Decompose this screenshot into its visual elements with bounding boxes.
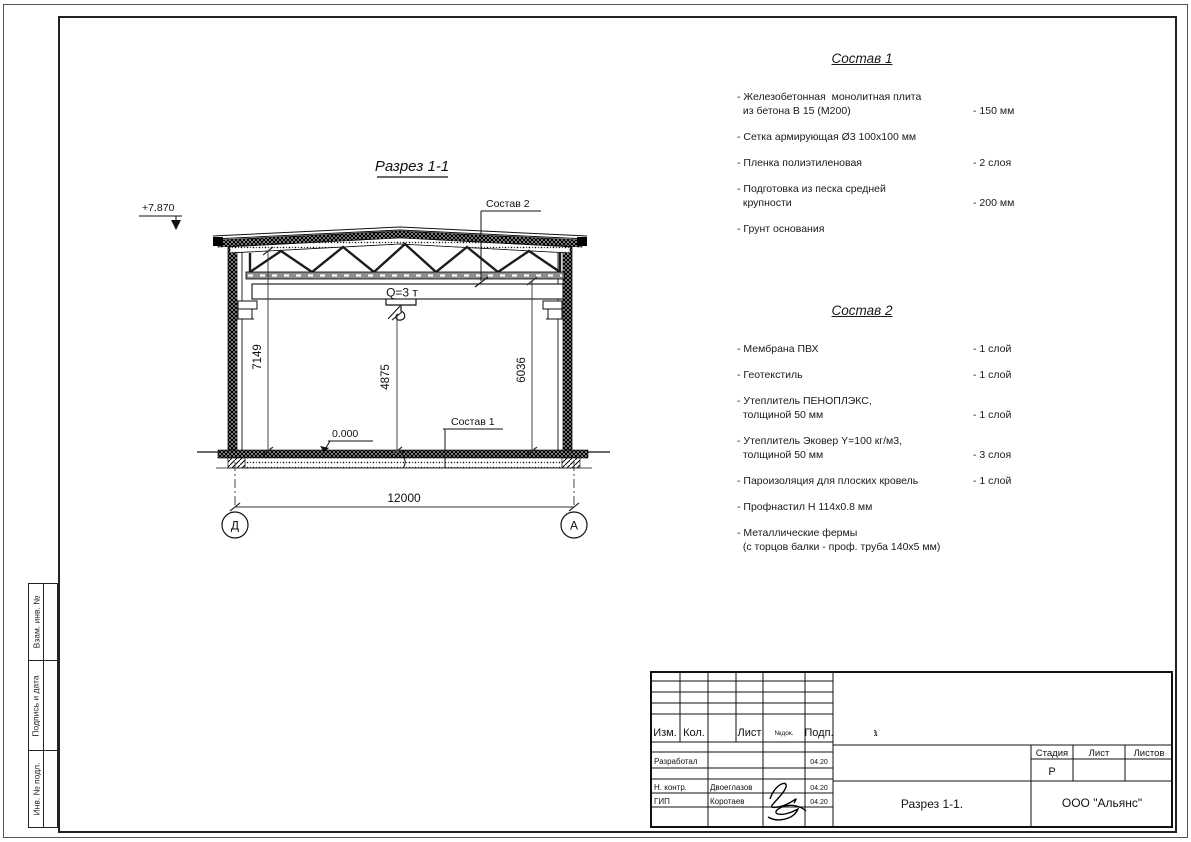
- material-list-sostav2: Состав 2 - Мембрана ПВХ - 1 слой - Геоте…: [737, 304, 1027, 566]
- material-name: - Пленка полиэтиленовая: [737, 156, 969, 170]
- crane-beam: Q=3 т: [252, 284, 563, 320]
- stamp-label-vzam: Взам. инв. №: [29, 584, 44, 660]
- stamp-empty: [44, 584, 57, 660]
- material-item: - Сетка армирующая Ø3 100х100 мм: [737, 130, 1027, 144]
- material-name: - Утеплитель Эковер Y=100 кг/м3, толщино…: [737, 434, 969, 462]
- column-corbels: [235, 301, 565, 319]
- material-name: - Геотекстиль: [737, 368, 969, 382]
- stamp-empty: [44, 751, 57, 827]
- company-name: ООО "Альянс": [1062, 796, 1142, 810]
- material-name: - Профнастил Н 114х0.8 мм: [737, 500, 969, 514]
- col-podp: Подп.: [804, 727, 833, 739]
- role-gip: ГИП: [654, 797, 670, 806]
- view-title-text: Разрез 1-1: [375, 158, 449, 175]
- col-izm: Изм.: [653, 727, 677, 739]
- callout-sostav2-text: Состав 2: [486, 198, 530, 210]
- stamp-text: Подпись и дата: [31, 675, 41, 736]
- callout-sostav1-text: Состав 1: [451, 416, 495, 428]
- material-name: - Металлические фермы (с торцов балки - …: [737, 526, 969, 554]
- stamp-label-podpis: Подпись и дата: [29, 661, 44, 750]
- date-gip: 04.20: [810, 799, 828, 806]
- material-item: - Грунт основания: [737, 222, 1027, 236]
- cross-section-drawing: Разрез 1-1 +7.870 Q=3: [100, 140, 680, 555]
- stamp-text: Взам. инв. №: [31, 596, 41, 649]
- sheets-label: Листов: [1134, 748, 1165, 759]
- material-item: - Железобетонная монолитная плита из бет…: [737, 90, 1027, 118]
- material-value: - 150 мм: [973, 104, 1027, 118]
- roof-edge-cap-left: [213, 237, 223, 246]
- stamp-text: Инв. № подл.: [31, 763, 41, 816]
- material-value: - 1 слой: [973, 368, 1027, 382]
- left-stamp-column: Взам. инв. № Подпись и дата Инв. № подл.: [28, 583, 58, 828]
- name-korotaev: Коротаев: [710, 797, 745, 806]
- material-list-sostav1: Состав 1 - Железобетонная монолитная пли…: [737, 52, 1027, 248]
- stamp-cell-podpis: Подпись и дата: [29, 661, 57, 751]
- material-item: - Мембрана ПВХ - 1 слой: [737, 342, 1027, 356]
- material-name: - Мембрана ПВХ: [737, 342, 969, 356]
- material-name: - Грунт основания: [737, 222, 969, 236]
- sheet-label: Лист: [1089, 748, 1110, 759]
- axis-letter-left: Д: [231, 519, 239, 533]
- dimension-12000: 12000: [387, 491, 421, 505]
- view-title: Разрез 1-1: [375, 158, 449, 177]
- date-nkontr: 04.20: [810, 785, 828, 792]
- material-value: - 2 слоя: [973, 156, 1027, 170]
- material-name: - Подготовка из песка средней крупности: [737, 182, 969, 210]
- stage-label: Стадия: [1036, 748, 1068, 759]
- material-item: - Утеплитель Эковер Y=100 кг/м3, толщино…: [737, 434, 1027, 462]
- stage-value: Р: [1048, 766, 1055, 778]
- dimension-7149: 7149: [252, 344, 264, 370]
- level-mark-text: 0.000: [332, 428, 358, 440]
- document-name: Разрез 1-1.: [901, 797, 963, 811]
- material-name: - Железобетонная монолитная плита из бет…: [737, 90, 969, 118]
- dimension-6036: 6036: [516, 357, 528, 383]
- col-kol: Кол.: [683, 727, 705, 739]
- name-dvoeglazov: Двоеглазов: [710, 783, 753, 792]
- dimension-4875: 4875: [380, 364, 392, 390]
- col-ndok: №док.: [774, 730, 793, 737]
- material-item: - Пленка полиэтиленовая - 2 слоя: [737, 156, 1027, 170]
- crane-trolley: [386, 299, 416, 305]
- material-item: - Геотекстиль - 1 слой: [737, 368, 1027, 382]
- date-razrabotal: 04.20: [810, 759, 828, 766]
- crane-capacity-label: Q=3 т: [386, 286, 418, 300]
- material-value: - 200 мм: [973, 196, 1027, 210]
- material-name: - Утеплитель ПЕНОПЛЭКС, толщиной 50 мм: [737, 394, 969, 422]
- material-name: - Пароизоляция для плоских кровель: [737, 474, 969, 488]
- material-item: - Профнастил Н 114х0.8 мм: [737, 500, 1027, 514]
- title-block: Изм. Кол. Лист №док. Подп. Дата Разработ…: [650, 671, 1173, 828]
- drawing-sheet: { "drawing": { "title": "Разрез 1-1", "e…: [0, 0, 1191, 842]
- list-title: Состав 1: [737, 52, 987, 66]
- span-dimension: 12000 Д А: [222, 462, 587, 538]
- stamp-cell-inv: Инв. № подл.: [29, 751, 57, 827]
- material-value: - 1 слой: [973, 342, 1027, 356]
- floor-slab: [197, 450, 610, 468]
- material-name: - Сетка армирующая Ø3 100х100 мм: [737, 130, 969, 144]
- col-list: Лист: [738, 727, 762, 739]
- elevation-text: +7.870: [142, 202, 175, 214]
- elevation-mark: +7.870: [139, 202, 182, 230]
- material-item: - Пароизоляция для плоских кровель - 1 с…: [737, 474, 1027, 488]
- stamp-label-inv: Инв. № подл.: [29, 751, 44, 827]
- level-mark: 0.000: [320, 428, 373, 452]
- material-item: - Подготовка из песка средней крупности …: [737, 182, 1027, 210]
- roof-edge-cap-right: [577, 237, 587, 246]
- material-item: - Металлические фермы (с торцов балки - …: [737, 526, 1027, 554]
- role-nkontr: Н. контр.: [654, 783, 687, 792]
- material-value: - 3 слоя: [973, 448, 1027, 462]
- role-razrabotal: Разработал: [654, 757, 698, 766]
- stamp-empty: [44, 661, 57, 750]
- material-value: - 1 слой: [973, 474, 1027, 488]
- list-title: Состав 2: [737, 304, 987, 318]
- material-item: - Утеплитель ПЕНОПЛЭКС, толщиной 50 мм -…: [737, 394, 1027, 422]
- stamp-cell-vzam: Взам. инв. №: [29, 584, 57, 661]
- material-value: - 1 слой: [973, 408, 1027, 422]
- axis-letter-right: А: [570, 519, 578, 533]
